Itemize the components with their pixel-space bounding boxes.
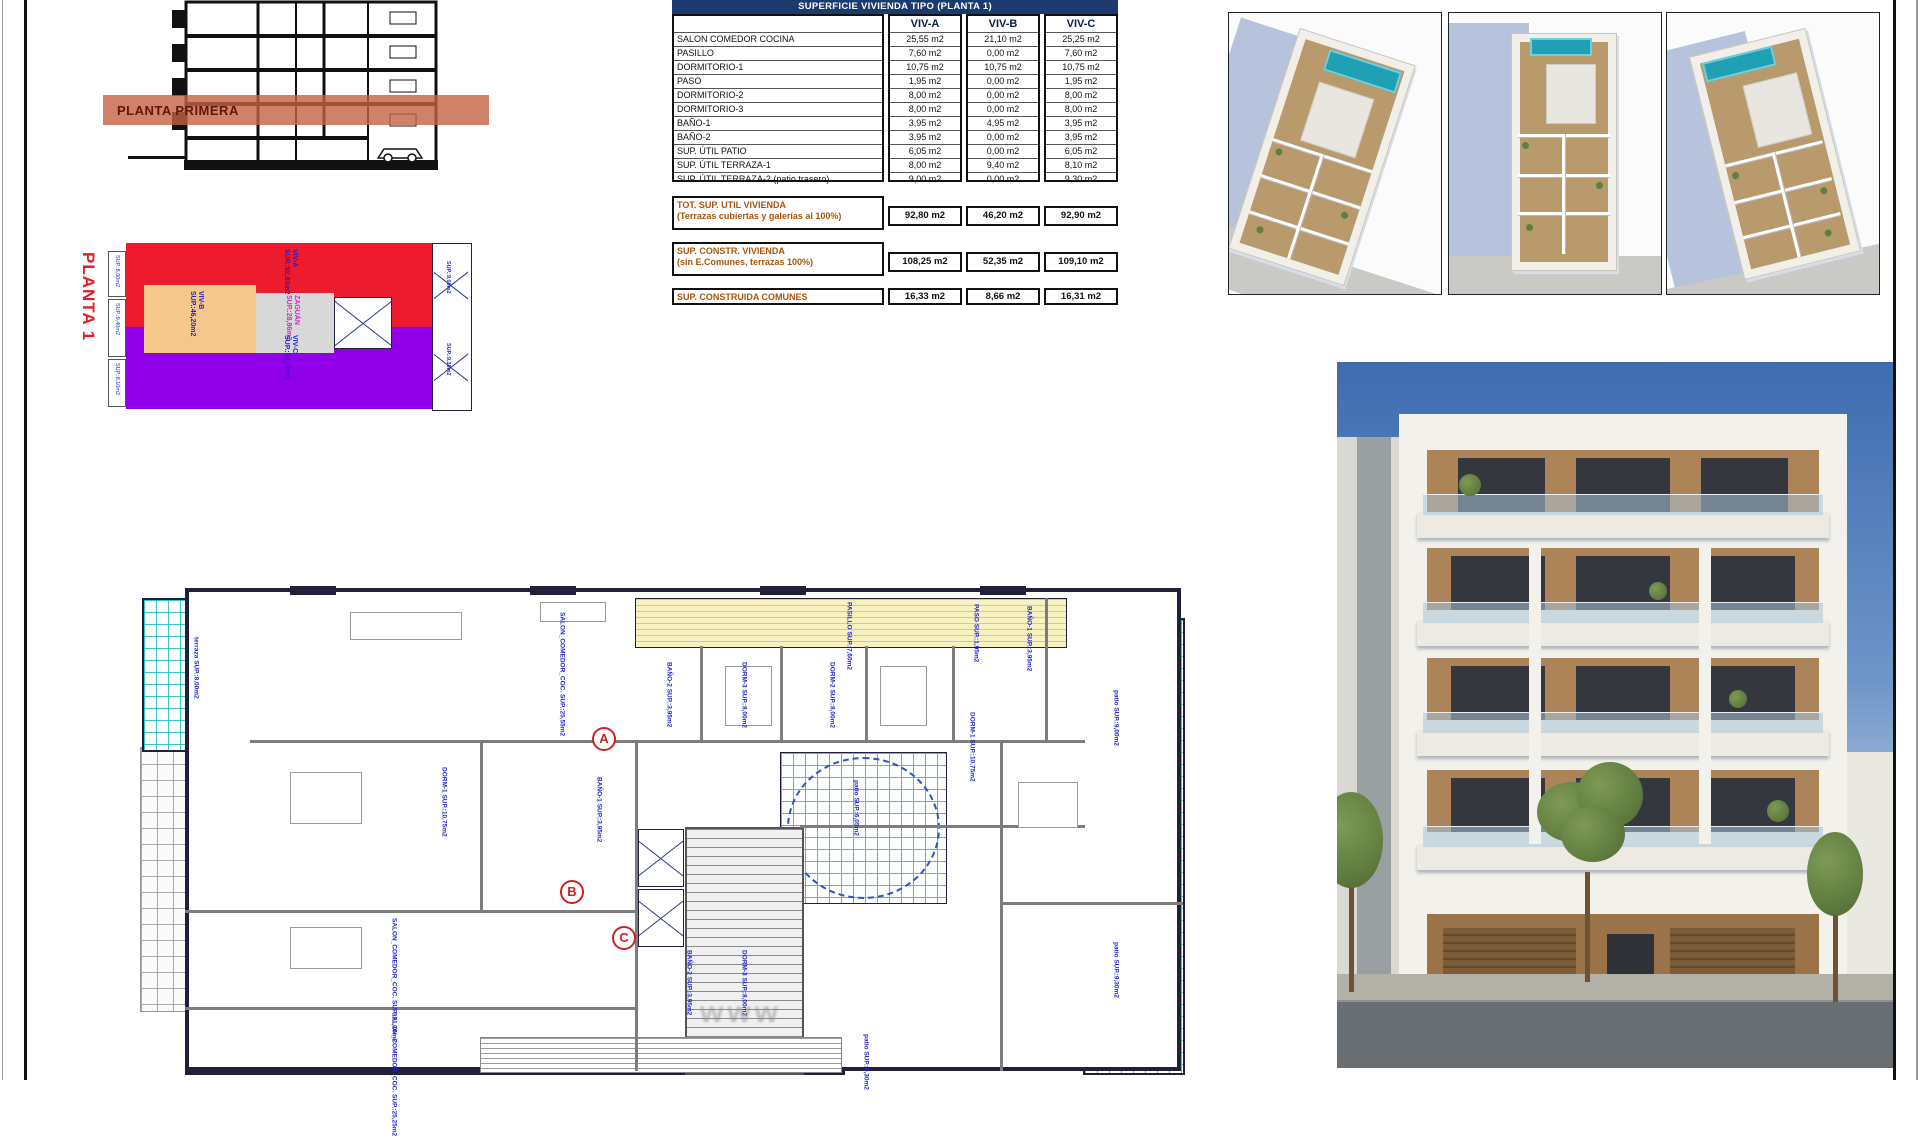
balcony-plant (1729, 690, 1747, 708)
detailed-floor-plan: terraza SUP.:8,00m2 SALON_COMEDOR_COC. S… (140, 582, 1195, 1080)
elevator-shaft-1 (638, 829, 684, 887)
cell-value: 21,10 m2 (968, 32, 1038, 46)
table-label-column: SALON COMEDOR COCINA PASILLO DORMITORIO-… (672, 14, 884, 182)
label-dorm1-a: DORM-1 SUP.:10,75m2 (440, 767, 448, 877)
cell-value: 4,95 m2 (968, 116, 1038, 130)
cell-value: 9,00 m2 (890, 172, 960, 186)
watermark: www (700, 996, 782, 1030)
total-util-viv-a: 92,80 m2 (888, 206, 962, 226)
label-bano2: BAÑO-2 SUP.:3,95m2 (665, 662, 673, 738)
total-comunes-viv-b: 8,66 m2 (966, 288, 1040, 305)
cell-value: 8,00 m2 (890, 88, 960, 102)
elevator-shaft-2 (638, 889, 684, 947)
aerial-render-3 (1666, 12, 1880, 295)
cell-value: 0,00 m2 (968, 144, 1038, 158)
cell-value: 8,00 m2 (890, 158, 960, 172)
building-section-drawing: PLANTA PRIMERA (128, 0, 464, 178)
cell-value: 3,95 m2 (1046, 116, 1116, 130)
edge-terraza-a: SUP.:8,00m2 (108, 251, 126, 297)
label-bano1-c: BAÑO-1 SUP.:3,95m2 (1025, 606, 1033, 686)
section-linework (128, 0, 464, 178)
cell-value: 6,05 m2 (890, 144, 960, 158)
table-title: SUPERFICIE VIVIENDA TIPO (PLANTA 1) (672, 0, 1118, 14)
key-plan: SUP.:8,00m2 SUP.:9,40m2 SUP.:8,10m2 VIV-… (104, 243, 470, 409)
cell-value: 10,75 m2 (968, 60, 1038, 74)
patio-tiles (780, 752, 947, 904)
cell-value: 9,30 m2 (1046, 172, 1116, 186)
patio-cross-box (334, 297, 392, 349)
balcony-plant (1459, 474, 1481, 496)
table-column-viv-a: VIV-A 25,55 m2 7,60 m2 10,75 m2 1,95 m2 … (888, 14, 962, 182)
edge-terraza-b: SUP.:9,40m2 (108, 299, 126, 357)
viv-b-label: VIV-BSUP.:46,20m2 (188, 291, 204, 349)
planta-primera-highlight-band: PLANTA PRIMERA (103, 95, 489, 125)
cell-value: 25,55 m2 (890, 32, 960, 46)
label-dorm3: DORM-3 SUP.:8,00m2 (740, 662, 748, 738)
cell-value: 3,95 m2 (890, 130, 960, 144)
sheet-border-left (24, 0, 27, 1080)
label-salon-b: SALON_COMEDOR_COC. SUP.:21,10m2 (390, 918, 398, 1004)
total-util-viv-b: 46,20 m2 (966, 206, 1040, 226)
balcony-slab-1 (1417, 844, 1829, 870)
cell-value: 7,60 m2 (1046, 46, 1116, 60)
unit-marker-c: C (612, 926, 636, 950)
render-pool (1530, 38, 1592, 56)
label-dorm2: DORM-2 SUP.:8,00m2 (828, 662, 836, 738)
total-comunes-label-box: SUP. CONSTRUIDA COMUNES (672, 288, 884, 305)
total-constr-label-box: SUP. CONSTR. VIVIENDA (sin E.Comunes, te… (672, 242, 884, 276)
row-label: PASILLO (674, 46, 882, 60)
row-label: DORMITORIO-1 (674, 60, 882, 74)
total-comunes-viv-c: 16,31 m2 (1044, 288, 1118, 305)
cell-value: 0,00 m2 (968, 130, 1038, 144)
planta1-title: PLANTA 1 (78, 252, 98, 392)
label-patio-right-top: patio SUP.:9,00m2 (1112, 690, 1120, 780)
main-building-facade (1399, 414, 1847, 1006)
label-bano2-b: BAÑO-2 SUP.:3,95m2 (685, 950, 693, 1036)
glass-railing-4 (1423, 494, 1823, 515)
street-road (1337, 1000, 1893, 1068)
cell-value: 3,95 m2 (1046, 130, 1116, 144)
total-constr-viv-b: 52,35 m2 (966, 252, 1040, 272)
cell-value: 10,75 m2 (1046, 60, 1116, 74)
sidewalk (1337, 974, 1893, 1000)
total-constr-viv-c: 109,10 m2 (1044, 252, 1118, 272)
cell-value: 8,00 m2 (890, 102, 960, 116)
aerial-render-2 (1448, 12, 1662, 295)
total-util-label-box: TOT. SUP. UTIL VIVIENDA (Terrazas cubier… (672, 196, 884, 230)
surface-area-table: SUPERFICIE VIVIENDA TIPO (PLANTA 1) SALO… (672, 0, 1120, 312)
label-pasillo: PASILLO SUP.:7,60m2 (845, 602, 853, 644)
balcony-plant (1649, 582, 1667, 600)
row-label: PASO (674, 74, 882, 88)
cell-value: 8,00 m2 (1046, 102, 1116, 116)
rear-patio-label-bottom: SUP.:9,30m2 (444, 343, 452, 393)
label-bano1-a: BAÑO-1 SUP.:3,95m2 (595, 777, 603, 867)
render-roof (1546, 64, 1596, 124)
balcony-slab-3 (1417, 620, 1829, 646)
facade-pillar (1699, 548, 1711, 844)
aerial-render-1 (1228, 12, 1442, 295)
row-label: BAÑO-2 (674, 130, 882, 144)
total-comunes-viv-a: 16,33 m2 (888, 288, 962, 305)
cell-value: 8,00 m2 (1046, 88, 1116, 102)
edge-terraza-c: SUP.:8,10m2 (108, 359, 126, 407)
cell-value: 25,25 m2 (1046, 32, 1116, 46)
viv-c-label: VIV-CSUP.:92,90m2 (282, 335, 298, 407)
glass-railing-2 (1423, 712, 1823, 733)
facade-render (1337, 362, 1893, 1068)
cell-value: 0,00 m2 (968, 74, 1038, 88)
table-column-viv-c: VIV-C 25,25 m2 7,60 m2 10,75 m2 1,95 m2 … (1044, 14, 1118, 182)
row-label: SUP. ÚTIL TERRAZA-2 (patio trasero) (674, 172, 882, 186)
column-header-viv-b: VIV-B (968, 16, 1038, 32)
render-building (1511, 33, 1617, 271)
cell-value: 6,05 m2 (1046, 144, 1116, 158)
label-paso: PASO SUP.:1,95m2 (972, 604, 980, 674)
cell-value: 0,00 m2 (968, 102, 1038, 116)
label-patio-circle: patio SUP.:6,05m2 (852, 780, 860, 870)
row-label: BAÑO-1 (674, 116, 882, 130)
total-constr-viv-a: 108,25 m2 (888, 252, 962, 272)
rear-patio-label-top: SUP.:9,00m2 (444, 261, 452, 311)
floor-band-2 (1427, 658, 1819, 720)
row-label: SUP. ÚTIL TERRAZA-1 (674, 158, 882, 172)
cell-value: 8,10 m2 (1046, 158, 1116, 172)
total-util-viv-c: 92,90 m2 (1044, 206, 1118, 226)
cell-value: 7,60 m2 (890, 46, 960, 60)
unit-marker-a: A (592, 727, 616, 751)
sheet-border-right (1893, 0, 1896, 1080)
cell-value: 1,95 m2 (1046, 74, 1116, 88)
table-corner-cell (674, 16, 882, 32)
cell-value: 0,00 m2 (968, 46, 1038, 60)
balcony-slab-2 (1417, 730, 1829, 756)
label-patio-bottom: patio SUP.:9,30m2 (862, 1034, 870, 1070)
table-column-viv-b: VIV-B 21,10 m2 0,00 m2 10,75 m2 0,00 m2 … (966, 14, 1040, 182)
label-salon-a: SALON_COMEDOR_COC. SUP.:25,55m2 (558, 612, 566, 732)
sheet-edge-line-right-outer (1916, 0, 1918, 1080)
label-dorm1-c: DORM-1 SUP.:10,75m2 (968, 712, 976, 812)
cell-value: 10,75 m2 (890, 60, 960, 74)
sheet-edge-line-left-outer (2, 0, 3, 1080)
column-header-viv-c: VIV-C (1046, 16, 1116, 32)
row-label: DORMITORIO-3 (674, 102, 882, 116)
rear-patio-hatch (480, 1037, 842, 1073)
cell-value: 9,40 m2 (968, 158, 1038, 172)
patio-circle (787, 757, 940, 899)
label-terraza-a: terraza SUP.:8,00m2 (192, 637, 200, 727)
floor-band-3 (1427, 548, 1819, 610)
row-label: SALON COMEDOR COCINA (674, 32, 882, 46)
unit-marker-b: B (560, 880, 584, 904)
cell-value: 0,00 m2 (968, 88, 1038, 102)
cell-value: 3,95 m2 (890, 116, 960, 130)
label-patio-right-bottom: patio SUP.:9,30m2 (1112, 942, 1120, 1032)
label-salon-c: SALON_COMEDOR_COC. SUP.:25,25m2 (390, 1012, 398, 1070)
cell-value: 1,95 m2 (890, 74, 960, 88)
column-header-viv-a: VIV-A (890, 16, 960, 32)
glass-railing-3 (1423, 602, 1823, 623)
balcony-slab-4 (1417, 512, 1829, 538)
cell-value: 0,00 m2 (968, 172, 1038, 186)
row-label: DORMITORIO-2 (674, 88, 882, 102)
planta-primera-label: PLANTA PRIMERA (103, 103, 239, 118)
balcony-plant (1767, 800, 1789, 822)
row-label: SUP. ÚTIL PATIO (674, 144, 882, 158)
